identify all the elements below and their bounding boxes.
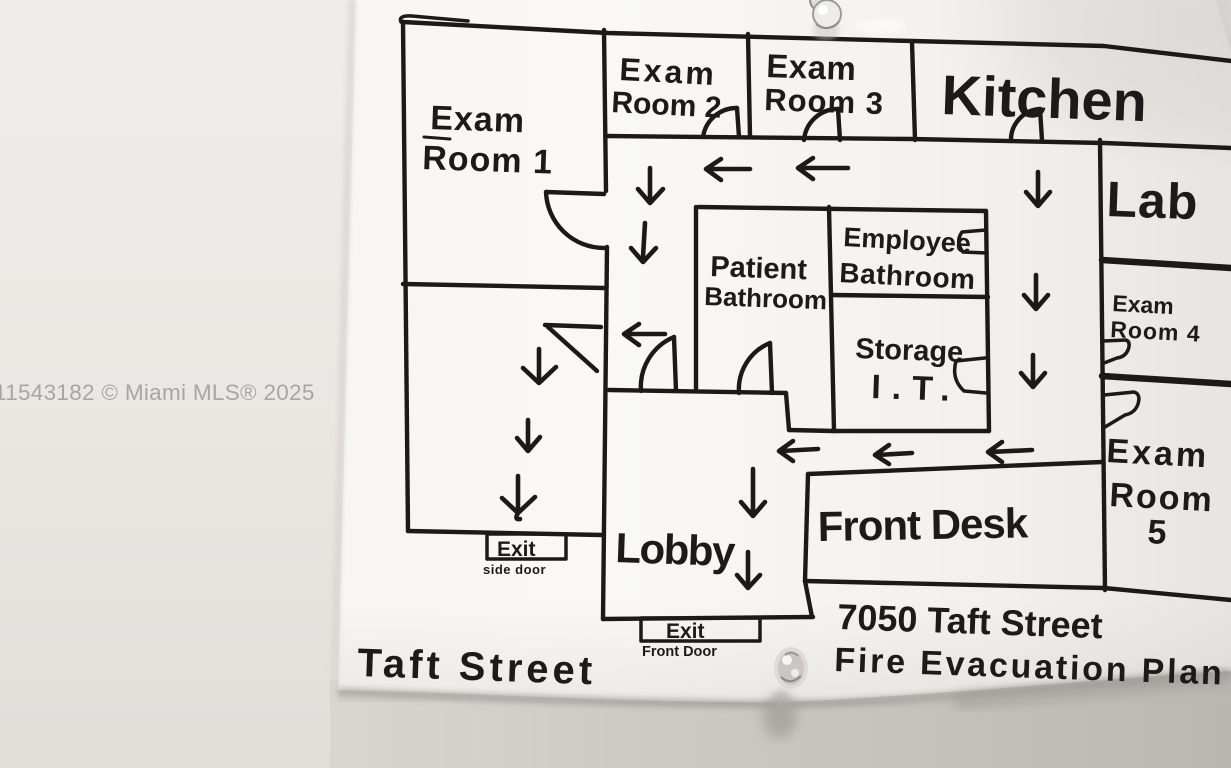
svg-text:Exit: Exit [666,620,705,643]
svg-text:Exam: Exam [430,99,526,140]
svg-text:Exam: Exam [766,47,857,87]
svg-text:Exam: Exam [1106,432,1211,475]
svg-text:side door: side door [483,562,546,577]
svg-text:5: 5 [1147,513,1168,552]
svg-text:Room 3: Room 3 [764,82,885,121]
svg-text:Lobby: Lobby [615,524,737,575]
svg-text:I.T.: I.T. [871,368,962,409]
svg-text:Room 2: Room 2 [611,86,723,125]
svg-text:Exam: Exam [619,51,718,92]
svg-text:Front Desk: Front Desk [817,499,1029,550]
svg-text:Storage: Storage [855,333,964,369]
svg-text:Bathroom: Bathroom [704,281,828,315]
svg-text:Room 1: Room 1 [422,139,554,182]
svg-text:Kitchen: Kitchen [941,63,1148,133]
svg-text:Exam: Exam [1112,290,1175,319]
svg-text:Front Door: Front Door [642,644,717,660]
svg-text:Lab: Lab [1106,171,1200,230]
svg-text:Exit: Exit [497,538,536,561]
svg-text:Room 4: Room 4 [1110,316,1202,347]
svg-text:11543182 © Miami MLS® 2025: 11543182 © Miami MLS® 2025 [0,380,315,405]
svg-text:Taft Street: Taft Street [357,641,597,693]
